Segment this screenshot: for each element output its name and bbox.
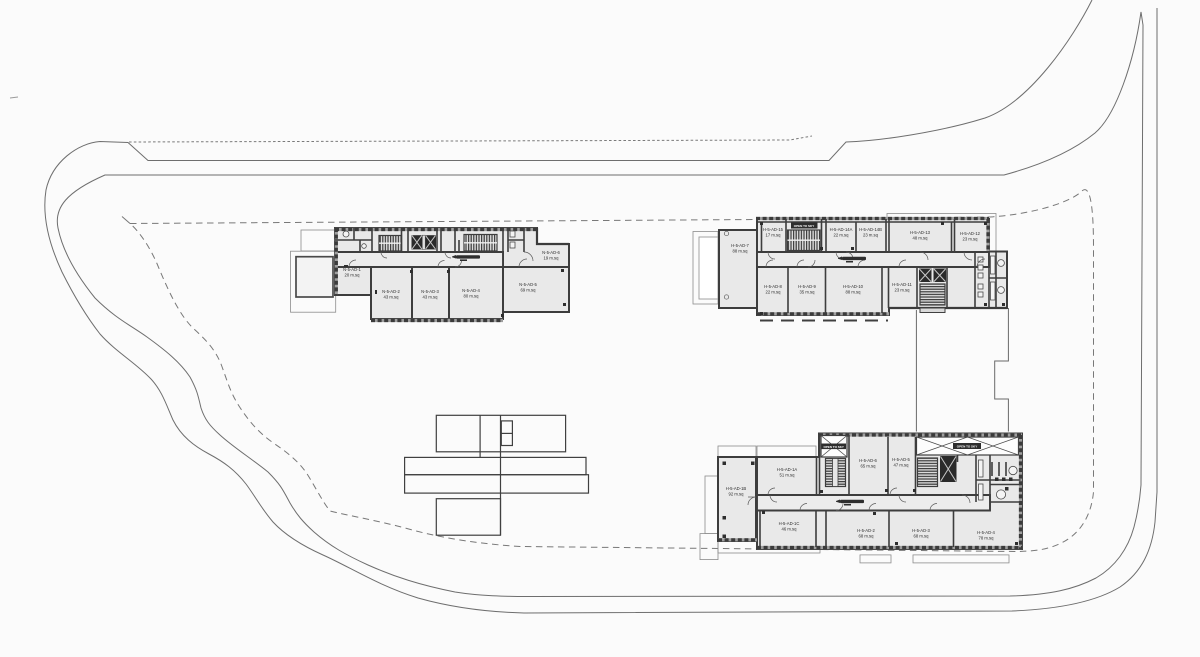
svg-text:H-5-AD-1A51 m.sq: H-5-AD-1A51 m.sq	[777, 467, 798, 477]
svg-text:H-5-AD-368 m.sq: H-5-AD-368 m.sq	[912, 528, 930, 538]
svg-text:N-5-AD-343 m.sq: N-5-AD-343 m.sq	[421, 289, 439, 299]
svg-text:H-5-AD-935 m.sq: H-5-AD-935 m.sq	[798, 284, 816, 294]
svg-text:H-5-AD-822 m.sq: H-5-AD-822 m.sq	[764, 284, 782, 294]
svg-text:OPEN TO SKY: OPEN TO SKY	[823, 445, 843, 449]
svg-text:N-5-AD-243 m.sq: N-5-AD-243 m.sq	[382, 289, 400, 299]
svg-text:H-5-AD-788 m.sq: H-5-AD-788 m.sq	[731, 243, 749, 253]
svg-text:N-5-AD-569 m.sq: N-5-AD-569 m.sq	[519, 282, 537, 292]
svg-text:OPEN TO SKY: OPEN TO SKY	[957, 445, 977, 449]
svg-text:H-5-AD-268 m.sq: H-5-AD-268 m.sq	[857, 528, 875, 538]
svg-text:N-5-AD-619 m.sq: N-5-AD-619 m.sq	[542, 250, 560, 260]
svg-text:H-5-AD-665 m.sq: H-5-AD-665 m.sq	[859, 458, 877, 468]
svg-text:H-5-AD-547 m.sq: H-5-AD-547 m.sq	[892, 457, 910, 467]
svg-text:OPEN TO SKY: OPEN TO SKY	[794, 224, 814, 228]
svg-text:N-5-AD-120 m.sq: N-5-AD-120 m.sq	[343, 267, 361, 277]
svg-text:H-5-AD-1B92 m.sq: H-5-AD-1B92 m.sq	[726, 486, 747, 496]
svg-text:N-5-AD-480 m.sq: N-5-AD-480 m.sq	[462, 288, 480, 298]
svg-text:H-5-AD-478 m.sq: H-5-AD-478 m.sq	[977, 530, 995, 540]
svg-text:H-5-AD-1C46 m.sq: H-5-AD-1C46 m.sq	[779, 521, 800, 531]
